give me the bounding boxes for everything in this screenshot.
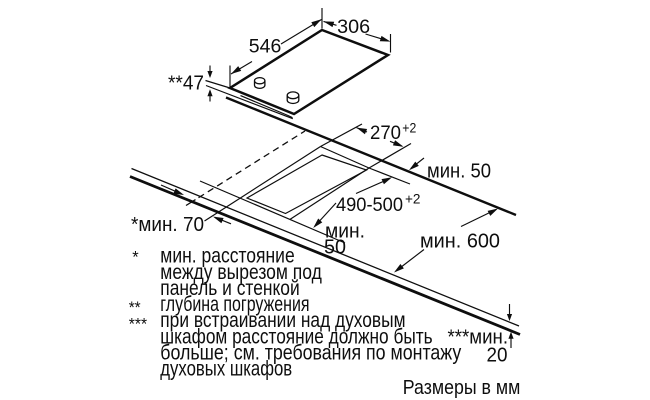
svg-text:**47: **47 xyxy=(168,73,204,95)
svg-text:+2: +2 xyxy=(405,190,421,206)
svg-text:306: 306 xyxy=(337,16,370,38)
svg-text:*: * xyxy=(132,249,139,267)
svg-text:50: 50 xyxy=(324,237,346,259)
svg-text:490-500: 490-500 xyxy=(336,194,403,216)
svg-text:мин. 600: мин. 600 xyxy=(420,231,500,253)
svg-text:270: 270 xyxy=(370,122,401,144)
svg-text:духовых шкафов: духовых шкафов xyxy=(160,358,292,381)
svg-text:***: *** xyxy=(129,315,148,334)
svg-text:мин. 50: мин. 50 xyxy=(427,160,491,182)
svg-text:546: 546 xyxy=(249,35,281,57)
svg-text:Размеры в мм: Размеры в мм xyxy=(403,376,521,399)
svg-text:+2: +2 xyxy=(402,119,416,135)
svg-text:20: 20 xyxy=(487,344,508,366)
svg-text:*мин. 70: *мин. 70 xyxy=(131,214,204,236)
